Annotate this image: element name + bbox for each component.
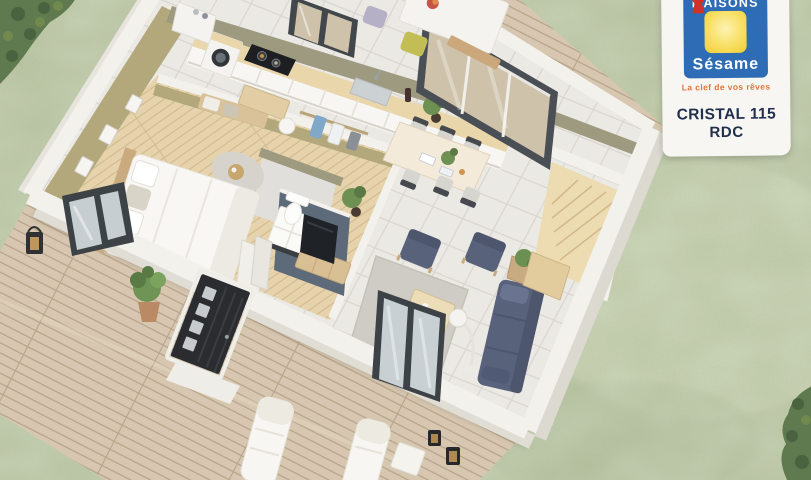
brand-name-bottom: Sésame [693, 57, 760, 74]
brand-logo: MAISONS Sésame [683, 0, 768, 78]
keyhole-icon [683, 0, 713, 16]
hall-chair [279, 118, 295, 134]
brand-card: MAISONS Sésame La clef de vos rêves CRIS… [661, 0, 791, 157]
logo-yellow-tile [704, 11, 746, 53]
floorplan-render: MAISONS Sésame La clef de vos rêves CRIS… [0, 0, 811, 480]
canister-2 [202, 13, 208, 19]
canister-1 [193, 9, 199, 15]
rug-tray [228, 164, 244, 180]
lantern-bottom-1 [428, 430, 441, 446]
floor-level-label: RDC [709, 124, 743, 141]
model-name: CRISTAL 115 [677, 105, 777, 124]
lantern-bottom-2 [446, 447, 460, 465]
brand-tagline: La clef de vos rêves [682, 82, 771, 93]
wine-bottle [405, 88, 411, 102]
